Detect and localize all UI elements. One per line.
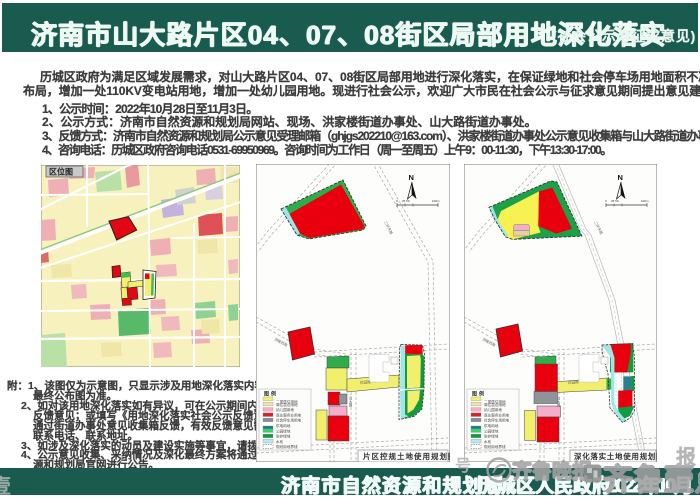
svg-text:公园绿地: 公园绿地 (276, 428, 291, 433)
svg-text:深化落实土地使用规划图: 深化落实土地使用规划图 (574, 451, 657, 461)
svg-text:花园路: 花园路 (360, 379, 372, 385)
svg-text:山大路: 山大路 (348, 395, 353, 407)
svg-text:规划用地界线: 规划用地界线 (276, 444, 298, 449)
svg-text:图例: 图例 (264, 391, 278, 398)
svg-text:N: N (409, 173, 414, 182)
svg-text:花园路: 花园路 (568, 379, 580, 385)
svg-text:100m: 100m (432, 199, 440, 203)
svg-text:供电用地: 供电用地 (276, 423, 291, 428)
svg-text:片区控规土地使用规划图: 片区控规土地使用规划图 (363, 451, 450, 461)
svg-text:商业服务业用地: 商业服务业用地 (484, 412, 510, 417)
svg-text:商业服务业用地: 商业服务业用地 (276, 412, 302, 417)
svg-text:水系: 水系 (484, 439, 492, 444)
svg-text:山大路: 山大路 (556, 395, 561, 407)
svg-text:供电用地: 供电用地 (484, 423, 499, 428)
svg-text:商住混合用地: 商住混合用地 (276, 402, 298, 407)
svg-text:社会停车场用地: 社会停车场用地 (484, 418, 510, 423)
svg-text:规划用地界线: 规划用地界线 (484, 444, 506, 449)
svg-text:幼儿园用地: 幼儿园用地 (276, 407, 294, 412)
svg-text:防护绿地: 防护绿地 (276, 434, 291, 439)
svg-text:100m: 100m (641, 199, 649, 203)
svg-text:幼儿园用地: 幼儿园用地 (484, 407, 502, 412)
svg-text:图例: 图例 (472, 391, 486, 398)
svg-text:防护绿地: 防护绿地 (484, 434, 499, 439)
svg-text:商住混合用地: 商住混合用地 (484, 402, 506, 407)
svg-text:25 50: 25 50 (611, 199, 619, 203)
svg-text:公园绿地: 公园绿地 (484, 428, 499, 433)
svg-text:水系: 水系 (276, 439, 284, 444)
svg-text:社会停车场用地: 社会停车场用地 (276, 418, 302, 423)
svg-text:区位图: 区位图 (49, 167, 73, 177)
svg-text:25 50: 25 50 (402, 199, 410, 203)
svg-text:N: N (618, 173, 623, 182)
